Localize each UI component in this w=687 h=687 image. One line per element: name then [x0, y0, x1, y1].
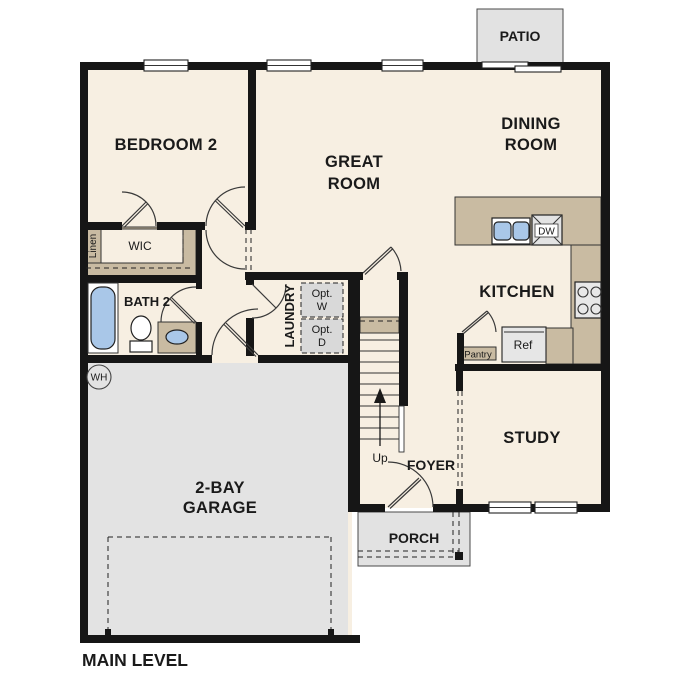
kitchen-sink-basin — [513, 222, 529, 240]
sliding-door-panel — [515, 66, 561, 72]
wall-segment — [245, 272, 363, 280]
wall-segment — [601, 62, 610, 512]
porch-post — [455, 552, 463, 560]
wall-segment — [84, 222, 122, 230]
kitchen-counter-lower — [546, 328, 573, 364]
level-title: MAIN LEVEL — [82, 650, 188, 670]
stove-fixture — [575, 282, 601, 318]
optional-dryer-label: Opt. — [312, 324, 333, 336]
room-label-kitchen: KITCHEN — [479, 283, 554, 301]
room-label-study: STUDY — [503, 429, 560, 447]
stairs-up-label: Up — [372, 451, 388, 465]
room-label-linen: Linen — [88, 234, 99, 258]
dishwasher-label: DW — [538, 227, 555, 238]
room-label-bath2: BATH 2 — [124, 294, 170, 309]
optional-washer-label: Opt. — [312, 288, 333, 300]
room-label-great-room: ROOM — [328, 175, 381, 193]
optional-washer-label: W — [317, 301, 328, 313]
wall-segment — [80, 635, 360, 643]
stair-railing — [399, 406, 404, 452]
room-label-garage: GARAGE — [183, 499, 257, 517]
optional-dryer-label: D — [318, 337, 326, 349]
wall-segment — [80, 275, 202, 283]
wall-segment — [348, 504, 385, 512]
room-label-great-room: GREAT — [325, 153, 383, 171]
wall-segment — [245, 222, 256, 230]
wall-segment — [248, 70, 256, 230]
wall-segment — [80, 355, 212, 363]
room-label-porch: PORCH — [389, 530, 440, 546]
wall-segment — [258, 355, 353, 363]
room-label-laundry: LAUNDRY — [282, 284, 297, 347]
room-label-garage: 2-BAY — [195, 479, 245, 497]
wall-segment — [196, 322, 202, 358]
wall-segment — [456, 371, 463, 391]
wall-segment — [399, 272, 408, 406]
refrigerator-label: Ref — [514, 338, 533, 352]
wall-segment — [348, 272, 360, 512]
floor-plan-canvas: PATIO BEDROOM 2 GREAT ROOM DINING ROOM K… — [0, 0, 687, 687]
floor-plan-drawing: PATIO BEDROOM 2 GREAT ROOM DINING ROOM K… — [0, 0, 687, 687]
garage-door-stop — [105, 629, 111, 635]
toilet-fixture — [131, 316, 151, 340]
wall-segment — [457, 333, 464, 364]
toilet-tank — [130, 341, 152, 352]
water-heater-label: WH — [91, 373, 108, 384]
garage-door-stop — [328, 629, 334, 635]
stair-landing — [360, 317, 399, 333]
wall-segment — [455, 364, 610, 371]
kitchen-sink-basin — [494, 222, 511, 240]
wall-segment — [196, 283, 202, 289]
room-label-foyer: FOYER — [407, 457, 455, 473]
pantry-label: Pantry — [464, 350, 492, 361]
room-label-dining-room: ROOM — [505, 136, 558, 154]
wall-segment — [196, 227, 202, 283]
room-label-patio: PATIO — [500, 28, 541, 44]
room-label-wic: WIC — [128, 239, 152, 253]
room-label-bedroom2: BEDROOM 2 — [115, 136, 218, 154]
wall-segment — [80, 62, 88, 643]
wall-segment — [456, 489, 463, 504]
bathtub-fixture — [91, 287, 115, 349]
vanity-sink-fixture — [166, 330, 188, 344]
room-label-dining-room: DINING — [501, 115, 561, 133]
